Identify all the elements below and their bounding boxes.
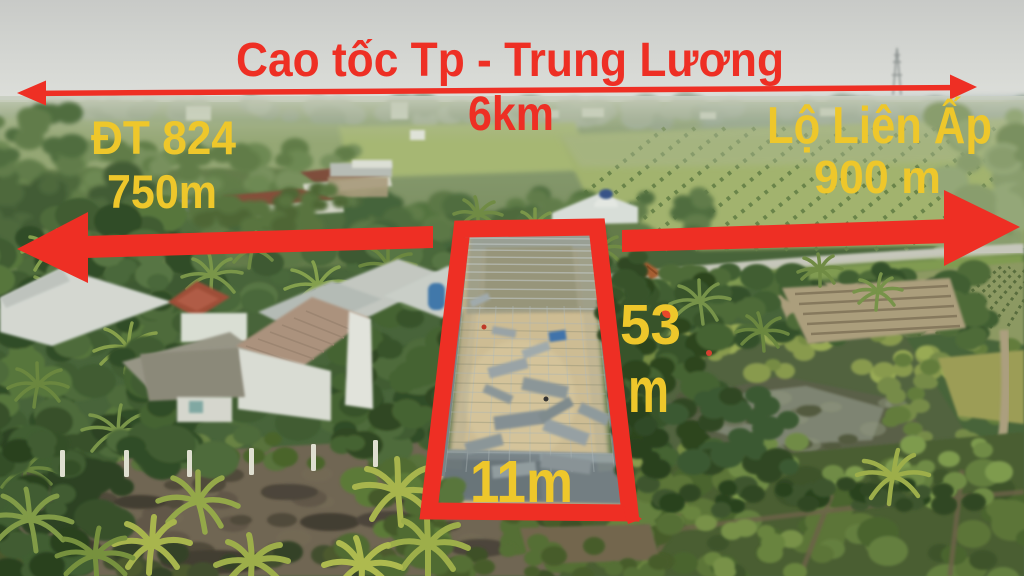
svg-text:900 m: 900 m — [814, 151, 941, 203]
svg-text:m: m — [628, 354, 669, 426]
svg-text:ĐT 824: ĐT 824 — [91, 111, 236, 164]
svg-text:6km: 6km — [468, 88, 554, 141]
svg-text:Cao tốc Tp - Trung Lương: Cao tốc Tp - Trung Lương — [236, 34, 784, 87]
svg-text:Lộ Liên Ấp: Lộ Liên Ấp — [767, 96, 992, 155]
svg-text:53: 53 — [620, 293, 681, 357]
svg-text:750m: 750m — [107, 165, 217, 218]
svg-text:11m: 11m — [470, 449, 573, 515]
